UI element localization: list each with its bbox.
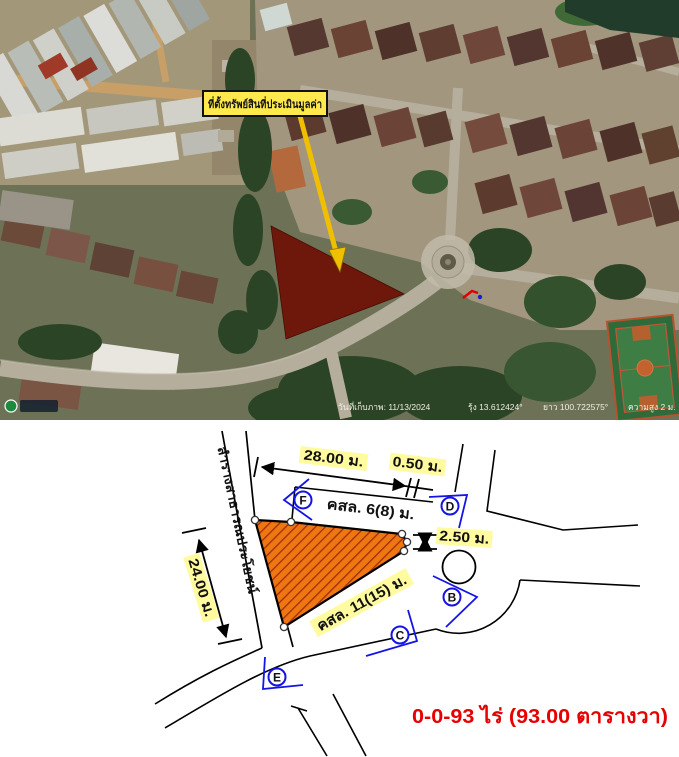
status-elevation: ความสูง 2 ม. (628, 402, 676, 413)
photo-marker-c-label: C (396, 629, 405, 643)
earth-logo-icon (5, 400, 17, 412)
photo-marker-c: C (366, 610, 417, 656)
report-page: ที่ตั้งทรัพย์สินที่ประเมินมูลค่า วันที่เ… (0, 0, 679, 757)
area-label: 0-0-93 ไร่ (93.00 ตารางวา) (412, 704, 668, 728)
photo-marker-e-label: E (273, 671, 281, 685)
north-road-label-group: คสล. 6(8) ม. (326, 497, 415, 524)
photo-marker-d-label: D (446, 500, 455, 514)
photo-marker-d: D (429, 495, 467, 528)
dim-28-label-group: 28.00 ม. (299, 446, 369, 471)
photo-marker-b-label: B (448, 591, 457, 605)
satellite-image: ที่ตั้งทรัพย์สินที่ประเมินมูลค่า วันที่เ… (0, 0, 679, 420)
status-longitude: ยาว 100.722575° (543, 402, 608, 412)
survey-diagram: ลำรางสาธารณประโยชน์ (0, 420, 679, 757)
roundabout (421, 235, 475, 289)
photo-marker-e: E (263, 657, 303, 689)
map-logo (5, 400, 58, 412)
dimension-right (413, 535, 437, 549)
callout-label: ที่ตั้งทรัพย์สินที่ประเมินมูลค่า (208, 96, 322, 112)
dim-050-label-group: 0.50 ม. (389, 453, 447, 477)
roundabout-island (443, 551, 476, 584)
status-imagery-date: วันที่เก็บภาพ: 11/13/2024 (338, 401, 431, 412)
photo-marker-f: F (284, 479, 312, 520)
callout: ที่ตั้งทรัพย์สินที่ประเมินมูลค่า (203, 91, 327, 116)
photo-marker-f-label: F (299, 494, 306, 508)
dim-050-label: 0.50 ม. (392, 453, 444, 475)
dim-250-label-group: 2.50 ม. (436, 527, 493, 548)
dim-24-label-group: 24.00 ม. (183, 553, 219, 623)
dimension-left (182, 528, 242, 644)
dim-24-label: 24.00 ม. (185, 557, 218, 619)
north-road-label: คสล. 6(8) ม. (326, 497, 415, 524)
status-latitude: รุ้ง 13.612424° (468, 402, 523, 413)
